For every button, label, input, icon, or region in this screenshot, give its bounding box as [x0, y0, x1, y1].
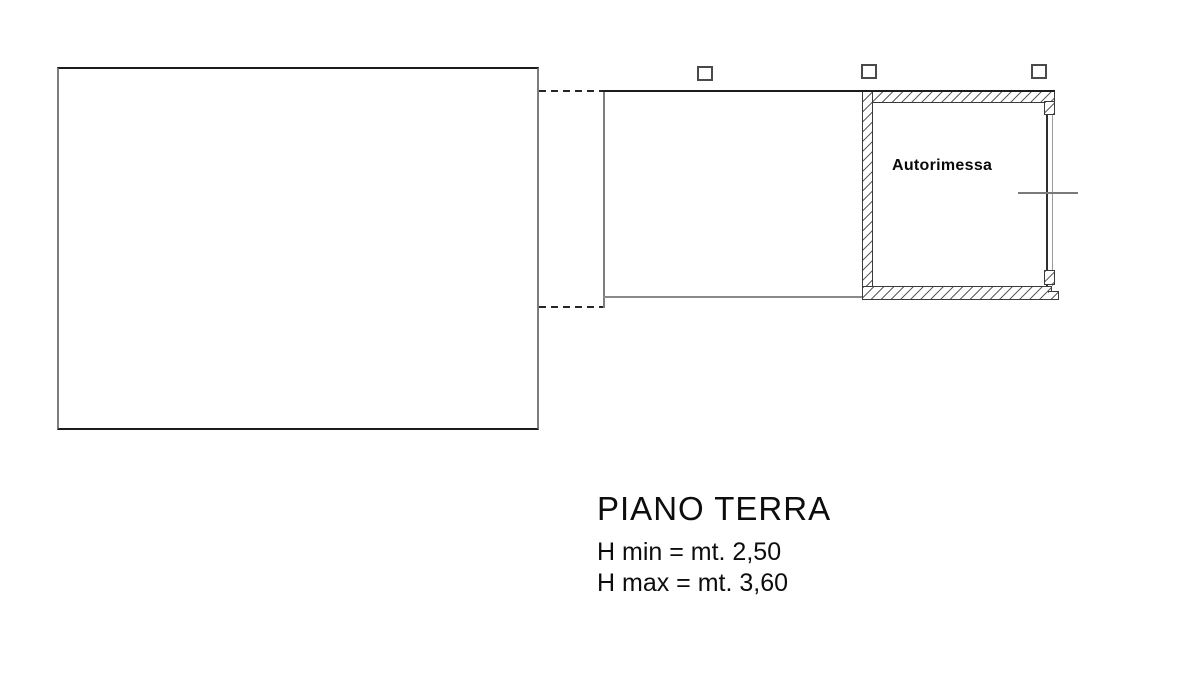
corridor-top-wall-line [603, 90, 1055, 92]
garage-wall-bottom [862, 286, 1052, 300]
height-max-label: H max = mt. 3,60 [597, 569, 788, 598]
column-marker-2 [861, 64, 877, 79]
garage-wall-bottom-step [1048, 291, 1059, 300]
height-min-label: H min = mt. 2,50 [597, 538, 781, 567]
floor-plan-canvas: Autorimessa PIANO TERRA H min = mt. 2,50… [0, 0, 1200, 700]
connection-dashed-line-bottom [539, 306, 605, 308]
garage-wall-left [862, 90, 873, 300]
garage-door-jamb-bottom [1044, 270, 1055, 285]
column-marker-1 [697, 66, 713, 81]
main-building-outline [57, 67, 539, 430]
column-marker-3 [1031, 64, 1047, 79]
room-label-autorimessa: Autorimessa [892, 157, 992, 175]
garage-door-axis-line [1018, 192, 1078, 194]
connection-dashed-line-top [539, 90, 605, 92]
corridor-left-wall-line [603, 90, 605, 308]
floor-title: PIANO TERRA [597, 490, 831, 528]
garage-door-jamb-top [1044, 101, 1055, 115]
corridor-bottom-wall-line [603, 296, 864, 298]
